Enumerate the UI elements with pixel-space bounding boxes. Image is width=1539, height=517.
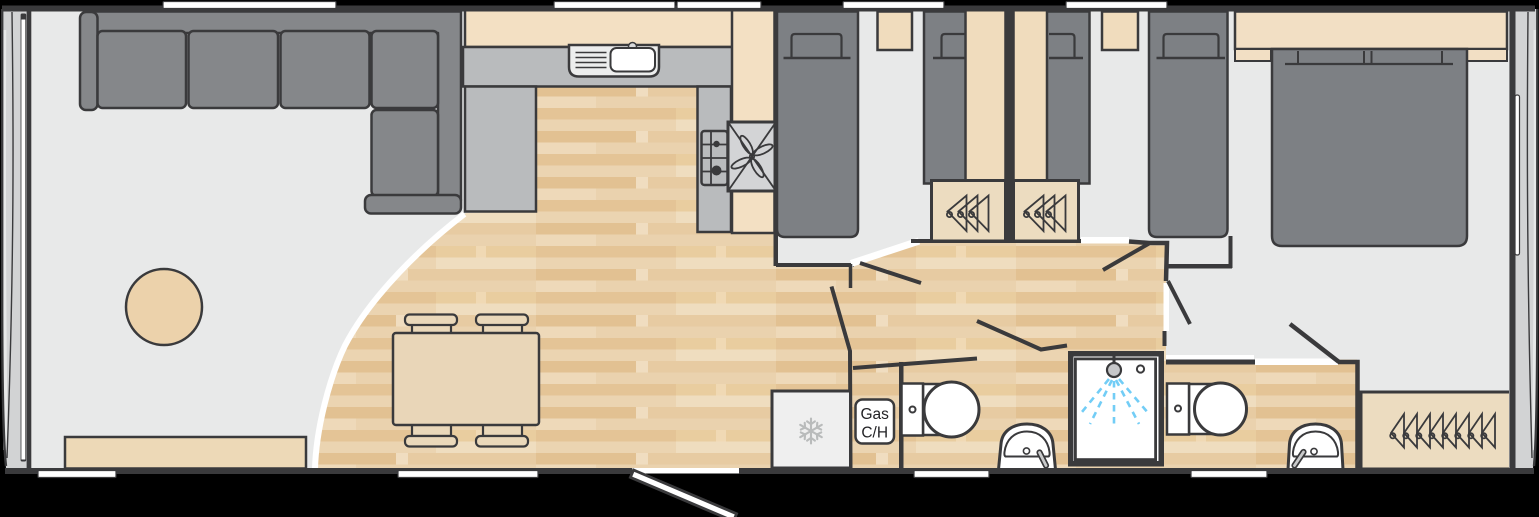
- svg-text:C/H: C/H: [861, 425, 888, 442]
- svg-text:Gas: Gas: [860, 406, 889, 423]
